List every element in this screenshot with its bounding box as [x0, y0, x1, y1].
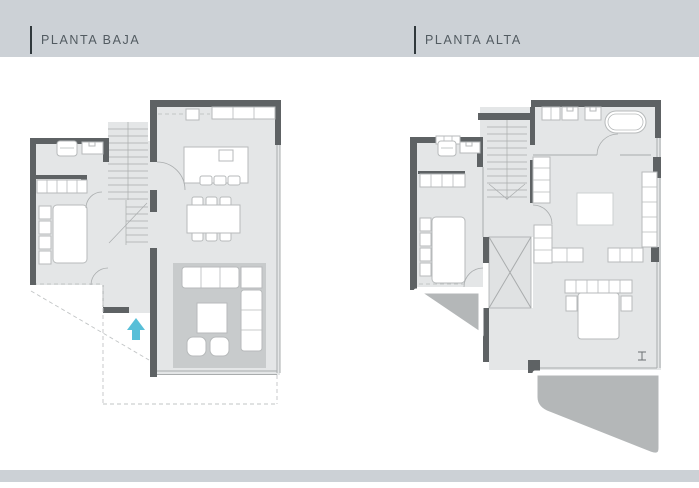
low-cabinet — [608, 248, 643, 262]
coffee-table — [197, 303, 227, 333]
wardrobe — [420, 174, 465, 187]
bed-headboard — [565, 280, 632, 293]
pouf — [210, 337, 229, 356]
wardrobe-column — [534, 225, 552, 263]
double-height-void — [489, 237, 531, 308]
title-accent-bar — [414, 26, 416, 54]
footer-band — [0, 470, 699, 482]
stair-bath-floor — [480, 107, 533, 207]
bed-mattress — [578, 293, 619, 339]
corridor-floor — [489, 308, 533, 370]
title-accent-bar — [30, 26, 32, 54]
landing-floor — [480, 203, 533, 237]
faucet — [466, 142, 472, 146]
pouf — [187, 337, 206, 356]
plan-title-text: PLANTA BAJA — [41, 33, 140, 47]
toilet — [438, 141, 456, 156]
main-terrace — [535, 373, 661, 455]
wardrobe-wall-unit — [642, 172, 657, 247]
plan-title-planta-baja: PLANTA BAJA — [30, 26, 140, 54]
kitchen-sink — [186, 109, 199, 120]
wardrobe — [37, 180, 87, 193]
planta-alta-floorplan — [400, 90, 699, 480]
sofa-corner — [241, 267, 262, 288]
kitchen-counter — [212, 107, 275, 119]
header-band: PLANTA BAJA PLANTA ALTA — [0, 0, 699, 57]
planta-baja-floorplan — [20, 90, 300, 470]
toilet — [57, 141, 77, 156]
cooktop — [219, 150, 233, 161]
area-rug — [577, 193, 613, 225]
entrance-arrow-icon — [127, 318, 145, 340]
sofa-chaise — [241, 290, 262, 351]
faucet — [590, 107, 596, 111]
low-cabinet — [552, 248, 583, 262]
dining-table — [187, 205, 240, 233]
small-terrace — [416, 291, 481, 335]
bed-mattress — [53, 205, 87, 263]
plan-title-planta-alta: PLANTA ALTA — [414, 26, 522, 54]
island-stools — [200, 176, 240, 185]
bed-mattress — [432, 217, 465, 283]
plan-title-text: PLANTA ALTA — [425, 33, 522, 47]
nightstand — [621, 296, 632, 311]
sofa-back — [182, 267, 239, 288]
floorplan-sheet: PLANTA BAJA PLANTA ALTA — [0, 0, 699, 488]
faucet — [89, 142, 95, 146]
faucet — [567, 107, 573, 111]
nightstand — [566, 296, 577, 311]
